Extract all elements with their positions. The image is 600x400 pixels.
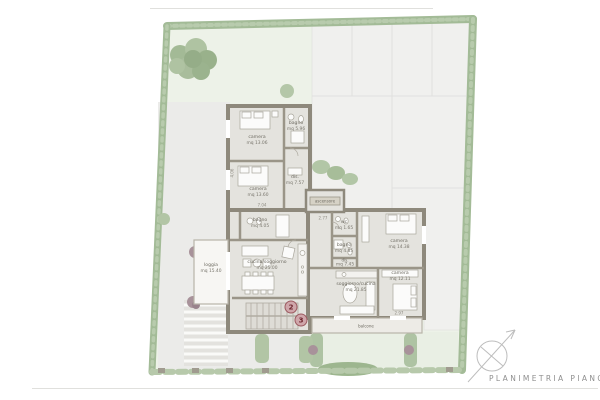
unit-2-number: 2: [289, 303, 294, 311]
driveway: [158, 102, 232, 371]
loggia-terrace: [194, 240, 228, 304]
balcony: [312, 318, 422, 333]
sheet-title: PLANIMETRIA PIANO PRIMO: [489, 374, 600, 383]
dimension-label: 4.06: [230, 169, 235, 178]
unit-2-marker: 2: [285, 301, 298, 314]
floor-plan-page: cameramq 13.06 bagnomq 5.96 cameramq 13.…: [0, 0, 600, 400]
dimension-label: 2.77: [319, 216, 328, 221]
dimension-label: 7.04: [258, 203, 267, 208]
south-pavement: [230, 334, 310, 370]
floor-plan-drawing: [0, 0, 600, 400]
unit-3-marker: 3: [295, 314, 308, 327]
dimension-label: 2.97: [395, 311, 404, 316]
unit-3-number: 3: [299, 316, 304, 324]
